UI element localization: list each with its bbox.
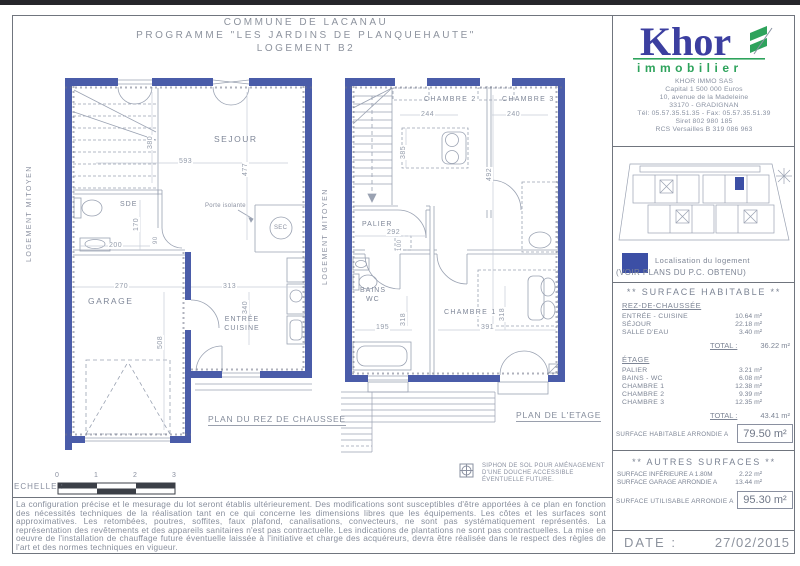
dim-270: 270 [114,283,129,290]
row-value: 3.40 m² [690,329,762,336]
company-city: 33170 - GRADIGNAN [613,102,795,109]
dim-292: 292 [386,229,401,236]
unit-highlight [735,177,744,190]
dim-195: 195 [375,324,390,331]
rounded-surface-label: SURFACE HABITABLE ARRONDIE A [616,431,728,438]
localisation-line1: Localisation du logement [655,256,750,265]
label-sec: SEC [274,225,287,231]
scale-tick-2: 2 [133,472,137,479]
dim-170: 170 [133,217,140,232]
room-label-chambre1: CHAMBRE 1 [444,309,497,316]
dim-318b: 318 [499,307,506,322]
logo-tagline: immobilier [637,61,743,75]
dim-318: 318 [400,312,407,327]
dim-593: 593 [178,158,193,165]
date-value: 27/02/2015 [695,535,790,550]
siphon-note-line1: SIPHON DE SOL POUR AMÉNAGEMENT [482,463,605,469]
scale-tick-3: 3 [172,472,176,479]
header-logement: LOGEMENT B2 [0,43,612,54]
logo-flag-icon [750,26,772,54]
etage-total-label: TOTAL : [710,411,737,420]
surface-habitable-title: ** SURFACE HABITABLE ** [613,287,795,297]
row-label: CHAMBRE 2 [622,391,664,398]
dim-391: 391 [480,324,495,331]
dim-313: 313 [222,283,237,290]
row-value: 12.35 m² [690,399,762,406]
row-value: 10.64 m² [690,313,762,320]
rdc-total-label: TOTAL : [710,341,737,350]
dim-385: 385 [400,145,407,160]
usable-surface-value: 95.30 m² [737,491,793,509]
room-label-chambre2: CHAMBRE 2 [424,96,477,103]
rdc-heading: REZ-DE-CHAUSSÉE [622,301,701,310]
room-label-bains: BAINS [360,287,386,294]
row-label: CHAMBRE 3 [622,399,664,406]
row-label: SALLE D'EAU [622,329,669,336]
siphon-icon [460,464,473,477]
siteplan-thumbnail [619,164,792,240]
company-phone: Tél: 05.57.35.51.35 - Fax: 05.57.35.51.3… [613,110,795,117]
row-label: CHAMBRE 1 [622,383,664,390]
rdc-total-value: 36.22 m² [745,341,790,350]
rounded-surface-value-text: 79.50 m² [743,428,786,440]
usable-surface-value-text: 95.30 m² [743,494,786,506]
room-label-sde: SDE [120,201,137,208]
row-value: 2.22 m² [720,471,762,478]
etage-total-value: 43.41 m² [745,411,790,420]
north-pinwheel-icon [776,168,792,184]
header-programme: PROGRAMME "LES JARDINS DE PLANQUEHAUTE" [0,30,612,41]
room-label-palier: PALIER [362,221,392,228]
date-label: DATE : [624,535,677,550]
siphon-note-line3: ÉVENTUELLE FUTURE. [482,477,554,483]
row-label: BAINS - WC [622,375,663,382]
dim-380: 380 [147,135,154,150]
row-value: 9.39 m² [690,391,762,398]
room-label-garage: GARAGE [88,296,133,306]
siphon-note-line2: D'UNE DOUCHE ACCESSIBLE [482,470,574,476]
row-label: PALIER [622,367,647,374]
row-label: SURFACE GARAGE ARRONDIE A [617,479,717,486]
plan-sheet: COMMUNE DE LACANAU PROGRAMME "LES JARDIN… [0,0,800,566]
usable-surface-label: SURFACE UTILISABLE ARRONDIE A [616,498,734,505]
row-value: 22.18 m² [690,321,762,328]
room-label-chambre3: CHAMBRE 3 [502,96,555,103]
floor-plan-title: PLAN DE L'ETAGE [516,410,601,422]
etage-heading: ÉTAGE [622,355,649,364]
room-label-entree: ENTRÉE [222,316,262,323]
row-value: 6.08 m² [690,375,762,382]
autres-surfaces-title: ** AUTRES SURFACES ** [613,457,795,467]
room-label-cuisine: CUISINE [222,325,262,332]
dim-240: 240 [506,111,521,118]
row-label: ENTRÉE - CUISINE [622,313,688,320]
row-value: 3.21 m² [690,367,762,374]
company-siret: Siret 802 980 185 [613,118,795,125]
company-capital: Capital 1 500 000 Euros [613,86,795,93]
party-wall-label-ground: LOGEMENT MITOYEN [26,165,33,262]
header-commune: COMMUNE DE LACANAU [0,17,612,28]
party-wall-label-floor: LOGEMENT MITOYEN [322,188,329,285]
dim-244: 244 [420,111,435,118]
scale-bar [58,483,175,494]
room-label-sejour: SEJOUR [214,134,257,144]
note-porte-isolante: Porte isolante [205,203,246,209]
row-value: 13.44 m² [720,479,762,486]
logo-brand: Khor [640,18,731,65]
ground-plan-title: PLAN DU REZ DE CHAUSSEE [208,414,346,426]
room-label-wc: WC [366,296,380,303]
row-label: SÉJOUR [622,321,651,328]
scale-tick-1: 1 [94,472,98,479]
company-name: KHOR IMMO SAS [613,78,795,85]
dim-477: 477 [242,162,249,177]
dim-340: 340 [242,300,249,315]
company-street: 10, avenue de la Madeleine [613,94,795,101]
scale-label: ECHELLE : [14,482,64,491]
dim-90: 90 [153,235,159,245]
dim-508: 508 [157,335,164,350]
company-rcs: RCS Versailles B 319 086 963 [613,126,795,133]
row-label: SURFACE INFÉRIEURE A 1.80M [617,471,713,478]
dim-100: 100 [397,238,403,252]
legal-disclaimer: La configuration précise et le mesurage … [16,500,606,551]
row-value: 12.38 m² [690,383,762,390]
localisation-line2: (VOIR PLANS DU P.C. OBTENU) [616,268,746,277]
dim-200: 200 [108,242,123,249]
rounded-surface-value: 79.50 m² [737,424,793,443]
dim-492: 492 [486,167,493,182]
scale-tick-0: 0 [55,472,59,479]
